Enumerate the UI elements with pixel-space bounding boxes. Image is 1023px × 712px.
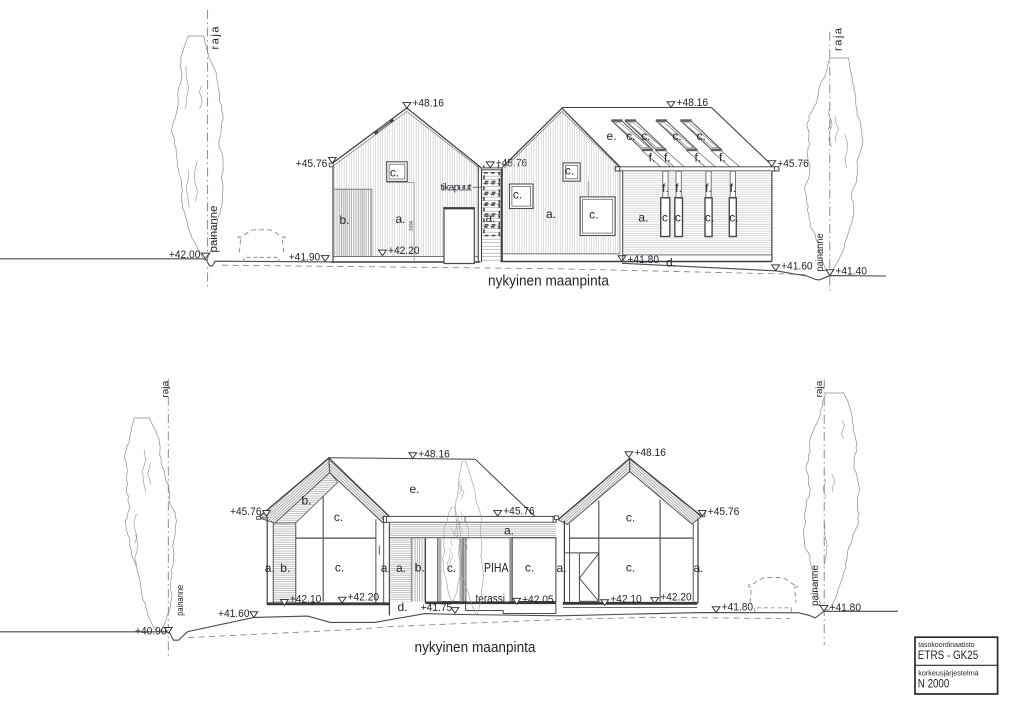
- svg-text:+48.16: +48.16: [634, 447, 666, 459]
- svg-text:raja: raja: [814, 380, 825, 397]
- svg-text:c.: c.: [626, 129, 635, 143]
- svg-text:c.: c.: [447, 561, 456, 575]
- svg-text:a.: a.: [395, 212, 405, 226]
- svg-text:+42.05: +42.05: [522, 594, 554, 606]
- svg-text:f.: f.: [730, 181, 737, 195]
- svg-text:c.: c.: [525, 561, 534, 575]
- svg-text:+42.20: +42.20: [388, 245, 420, 257]
- svg-text:+48.16: +48.16: [418, 448, 450, 460]
- svg-text:f.: f.: [694, 151, 701, 165]
- svg-text:+42.20: +42.20: [348, 591, 380, 603]
- svg-text:c.: c.: [641, 129, 650, 143]
- svg-text:+41.60: +41.60: [218, 608, 250, 620]
- svg-text:c.: c.: [589, 207, 598, 221]
- svg-text:painanne: painanne: [175, 585, 186, 616]
- svg-text:PIHA: PIHA: [484, 560, 509, 575]
- svg-text:a.: a.: [693, 561, 703, 575]
- svg-text:c.: c.: [662, 211, 671, 225]
- svg-text:painanne: painanne: [810, 565, 821, 606]
- svg-text:c.: c.: [675, 211, 684, 225]
- svg-text:+41.80: +41.80: [628, 254, 660, 266]
- svg-text:e.: e.: [606, 129, 616, 143]
- svg-text:tikapuut: tikapuut: [441, 183, 472, 194]
- svg-text:b.: b.: [301, 494, 311, 508]
- svg-text:raja: raja: [210, 26, 222, 50]
- svg-text:a.: a.: [381, 561, 391, 575]
- svg-text:c.: c.: [705, 211, 714, 225]
- svg-text:nykyinen maanpinta: nykyinen maanpinta: [488, 274, 610, 290]
- svg-text:+40.90: +40.90: [135, 626, 167, 638]
- svg-text:f.: f.: [662, 181, 669, 195]
- svg-text:c.: c.: [729, 211, 738, 225]
- svg-text:+45.76: +45.76: [296, 158, 328, 170]
- svg-text:+41.80: +41.80: [830, 602, 862, 614]
- svg-text:a.: a.: [638, 211, 648, 225]
- svg-text:f.: f.: [705, 181, 712, 195]
- svg-text:b.: b.: [339, 213, 349, 227]
- svg-text:+41.80: +41.80: [722, 602, 754, 614]
- svg-text:c.: c.: [513, 187, 522, 201]
- svg-text:a.: a.: [504, 524, 514, 538]
- svg-text:N 2000: N 2000: [918, 676, 950, 690]
- svg-text:+45.76: +45.76: [777, 158, 809, 170]
- svg-text:+45.76: +45.76: [230, 506, 262, 518]
- svg-text:b.: b.: [280, 561, 290, 575]
- svg-text:+48.16: +48.16: [677, 97, 709, 109]
- svg-text:e.: e.: [409, 482, 419, 496]
- svg-text:+42.20: +42.20: [660, 591, 692, 603]
- svg-text:a.: a.: [265, 561, 275, 575]
- svg-text:c.: c.: [565, 164, 574, 178]
- svg-text:painanne: painanne: [208, 206, 220, 253]
- svg-text:raja: raja: [160, 380, 171, 398]
- svg-text:+41.90: +41.90: [289, 252, 321, 264]
- svg-text:c.: c.: [697, 129, 706, 143]
- svg-text:painanne: painanne: [815, 233, 826, 271]
- svg-text:f.: f.: [664, 151, 671, 165]
- svg-text:+41.60: +41.60: [781, 261, 813, 273]
- svg-text:nykyinen maanpinta: nykyinen maanpinta: [415, 640, 537, 656]
- svg-text:c.: c.: [334, 510, 343, 524]
- svg-text:raja: raja: [833, 27, 845, 51]
- svg-text:a.: a.: [485, 211, 495, 225]
- svg-text:f.: f.: [675, 181, 682, 195]
- svg-text:c.: c.: [626, 511, 635, 525]
- svg-text:+41.75: +41.75: [421, 602, 453, 614]
- svg-text:f.: f.: [719, 151, 726, 165]
- svg-text:d.: d.: [397, 600, 407, 614]
- svg-text:3330: 3330: [409, 220, 414, 231]
- svg-text:c.: c.: [626, 561, 635, 575]
- svg-text:b.: b.: [415, 561, 425, 575]
- svg-text:+41.40: +41.40: [835, 265, 867, 277]
- svg-text:c.: c.: [672, 129, 681, 143]
- svg-text:c.: c.: [390, 165, 399, 179]
- svg-text:+45.76: +45.76: [503, 505, 535, 517]
- svg-text:+42.00: +42.00: [169, 249, 201, 261]
- svg-text:+42.10: +42.10: [290, 593, 322, 605]
- svg-text:ETRS - GK25: ETRS - GK25: [918, 648, 979, 662]
- svg-text:a.: a.: [546, 207, 556, 221]
- svg-text:c.: c.: [335, 561, 344, 575]
- svg-text:f.: f.: [649, 151, 656, 165]
- svg-text:+45.76: +45.76: [708, 506, 740, 518]
- svg-text:a.: a.: [556, 561, 566, 575]
- svg-text:d.: d.: [666, 255, 676, 269]
- svg-text:+48.16: +48.16: [412, 97, 444, 109]
- svg-text:+42.10: +42.10: [610, 593, 642, 605]
- svg-text:a.: a.: [396, 561, 406, 575]
